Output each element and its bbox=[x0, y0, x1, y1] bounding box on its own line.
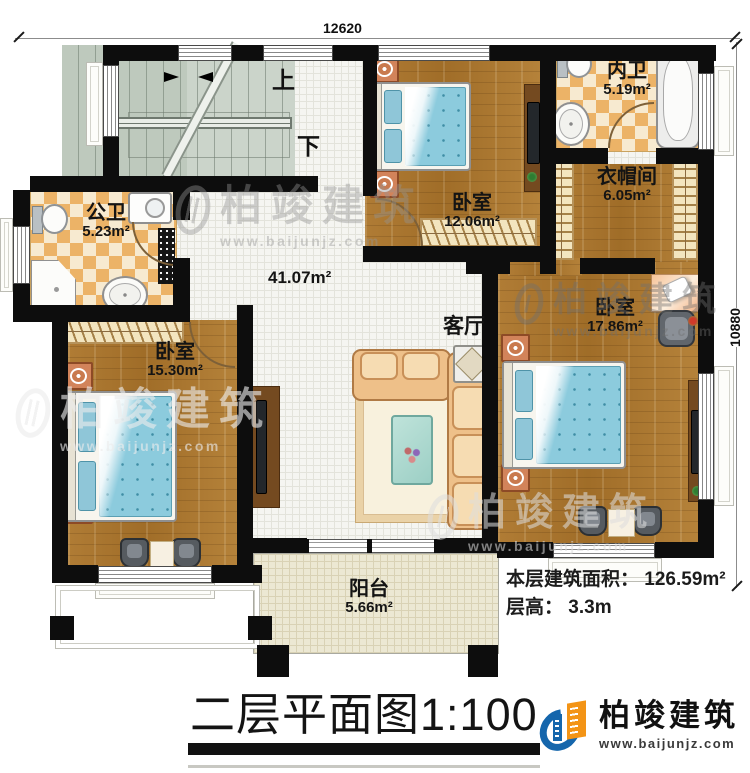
armchair bbox=[658, 310, 695, 347]
dimension-width: 12620 bbox=[320, 20, 365, 36]
stairs-down-label: 下 bbox=[297, 127, 320, 161]
window bbox=[103, 65, 119, 137]
wall bbox=[363, 45, 377, 196]
column bbox=[468, 645, 498, 677]
window bbox=[698, 373, 714, 500]
column bbox=[248, 616, 272, 640]
wall bbox=[698, 500, 714, 558]
stairs-arrow-icon bbox=[164, 72, 179, 82]
wall bbox=[240, 538, 307, 553]
wall bbox=[497, 542, 553, 558]
room-label-bedroom-top: 卧室 12.06m² bbox=[444, 192, 500, 231]
dimension-height: 10880 bbox=[724, 308, 746, 347]
dimension-tick-icon bbox=[13, 31, 24, 42]
bed-headboard bbox=[67, 393, 76, 520]
wall bbox=[173, 190, 190, 220]
title-underline-thin bbox=[188, 765, 540, 768]
logo-tower-icon bbox=[553, 714, 562, 741]
wall bbox=[466, 258, 510, 274]
side-table bbox=[150, 541, 174, 567]
wall bbox=[13, 305, 190, 322]
pillow bbox=[78, 461, 96, 511]
window-sill bbox=[0, 218, 13, 292]
bed bbox=[371, 82, 471, 171]
wall bbox=[556, 148, 608, 164]
hall-area-label: 41.07m² bbox=[268, 268, 331, 288]
sink bbox=[552, 102, 590, 146]
porch-outline bbox=[55, 585, 260, 649]
window bbox=[178, 45, 232, 61]
sofa-cushion bbox=[360, 352, 398, 380]
wall bbox=[237, 305, 253, 567]
tv bbox=[256, 400, 267, 494]
stairs-arrow-icon bbox=[198, 72, 213, 82]
wall bbox=[212, 565, 262, 583]
coffee-table bbox=[391, 415, 433, 485]
window bbox=[13, 226, 30, 284]
floor-height-info: 层高： 3.3m bbox=[506, 592, 612, 619]
door-jamb bbox=[303, 539, 309, 553]
window-sill bbox=[714, 66, 734, 156]
plan-title: 二层平面图1:100 bbox=[190, 678, 538, 743]
window bbox=[98, 566, 212, 583]
pillow bbox=[515, 370, 533, 412]
pillow bbox=[384, 129, 402, 163]
chair bbox=[633, 506, 662, 536]
pillow bbox=[78, 402, 96, 452]
window bbox=[553, 543, 655, 558]
nightstand bbox=[64, 362, 93, 390]
chair bbox=[172, 538, 201, 568]
bed-sheet-fold bbox=[536, 366, 574, 464]
wall bbox=[363, 246, 556, 262]
balcony-sliding-door bbox=[307, 539, 440, 553]
window-sill bbox=[714, 366, 734, 506]
dimension-tick-icon bbox=[731, 580, 742, 591]
window-sill bbox=[86, 62, 103, 146]
brand-name: 柏竣建筑 bbox=[599, 700, 739, 733]
wall bbox=[440, 538, 498, 553]
floor-area-info: 本层建筑面积： 126.59m² bbox=[506, 564, 726, 591]
wardrobe bbox=[672, 158, 698, 260]
wall bbox=[173, 258, 190, 305]
bathtub bbox=[656, 48, 700, 149]
wall bbox=[52, 322, 68, 567]
logo-building-icon bbox=[567, 700, 586, 739]
bed-sheet-fold bbox=[405, 87, 443, 166]
pillow bbox=[515, 418, 533, 460]
brand-logo: 柏竣建筑 www.baijunjz.com bbox=[541, 700, 739, 758]
wall bbox=[580, 258, 655, 274]
room-label-cloakroom: 衣帽间 6.05m² bbox=[597, 166, 657, 205]
chair bbox=[120, 538, 149, 568]
bed bbox=[65, 391, 177, 522]
window bbox=[698, 73, 714, 150]
wall bbox=[698, 150, 714, 373]
brand-url: www.baijunjz.com bbox=[599, 736, 739, 751]
wall bbox=[52, 565, 98, 583]
column bbox=[50, 616, 74, 640]
stairs-up-label: 上 bbox=[272, 61, 295, 95]
column bbox=[257, 645, 289, 677]
title-underline bbox=[188, 743, 540, 755]
pillow bbox=[384, 90, 402, 124]
bed bbox=[502, 361, 626, 469]
washing-machine bbox=[128, 192, 172, 224]
dimension-line-top bbox=[15, 38, 740, 39]
bed-headboard bbox=[504, 363, 513, 467]
window bbox=[263, 45, 333, 61]
room-label-balcony: 阳台 5.66m² bbox=[345, 578, 393, 617]
room-label-public-bath: 公卫 5.23m² bbox=[82, 202, 130, 241]
door-jamb bbox=[434, 539, 440, 553]
tv bbox=[527, 102, 540, 164]
toilet-bowl bbox=[41, 204, 68, 234]
room-label-living: 客厅 bbox=[443, 310, 485, 340]
nightstand bbox=[501, 334, 530, 362]
floor-plan: 公卫 5.23m² 卧室 12.06m² 内卫 5.19m² 衣帽间 6.05m… bbox=[0, 0, 750, 773]
window bbox=[378, 45, 490, 61]
wall bbox=[540, 45, 556, 274]
room-label-master-bath: 内卫 5.19m² bbox=[603, 60, 651, 99]
chair bbox=[578, 506, 607, 536]
flower-pot bbox=[688, 316, 698, 326]
bed-sheet-fold bbox=[99, 396, 137, 517]
wall bbox=[698, 45, 714, 73]
watermark-logo-icon bbox=[11, 385, 55, 441]
plant bbox=[527, 172, 537, 182]
door-jamb bbox=[367, 539, 372, 553]
sofa-cushion bbox=[402, 352, 440, 380]
room-label-bedroom-left: 卧室 15.30m² bbox=[147, 341, 203, 380]
brand-logo-icon bbox=[541, 700, 591, 758]
side-table bbox=[608, 509, 635, 537]
room-label-bedroom-right: 卧室 17.86m² bbox=[587, 297, 643, 336]
